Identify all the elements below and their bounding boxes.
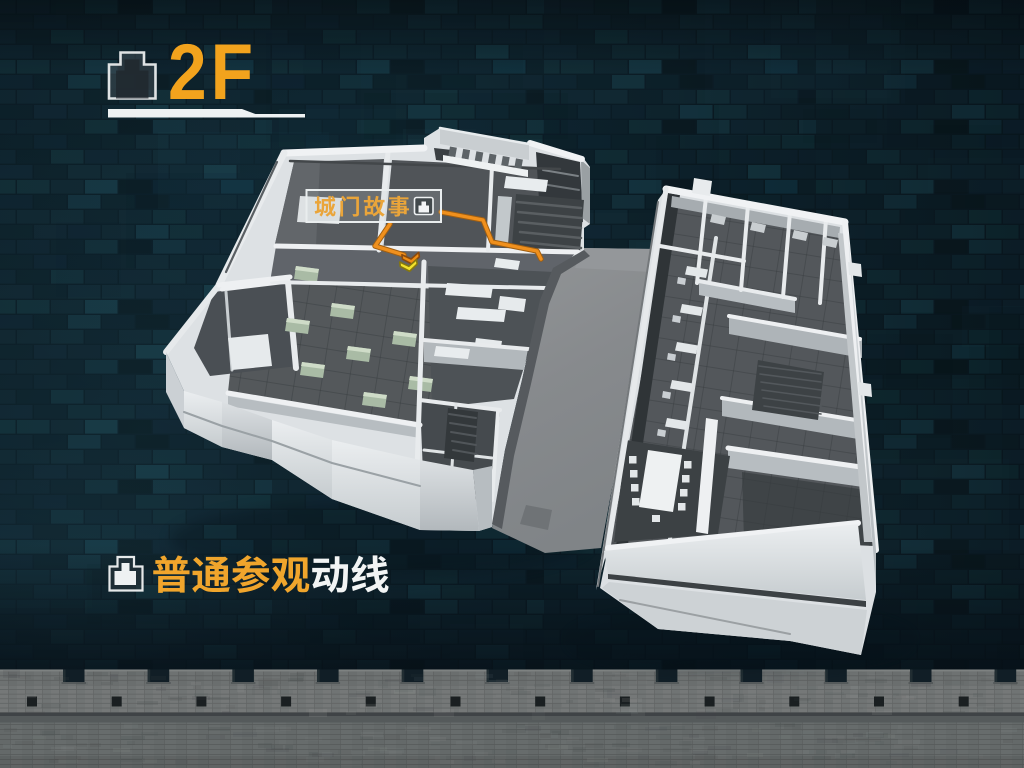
svg-text:2F: 2F [168,28,257,116]
